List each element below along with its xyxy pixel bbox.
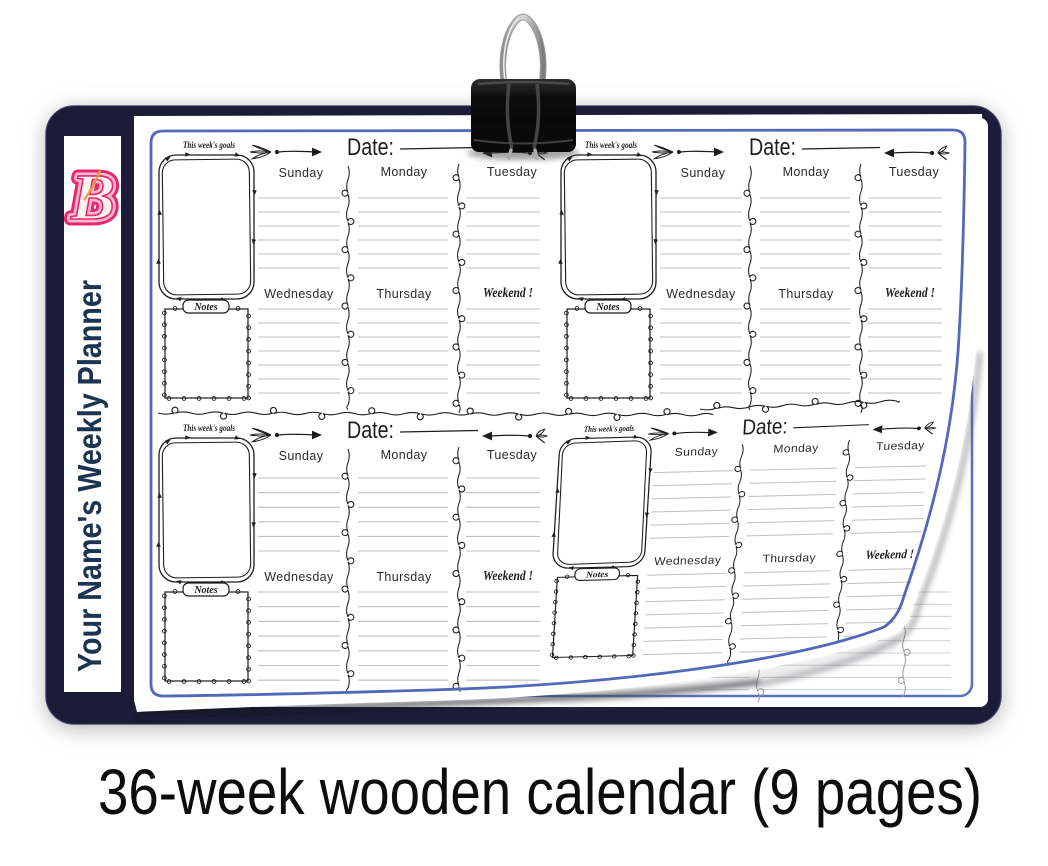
svg-text:Tuesday: Tuesday — [889, 165, 940, 179]
svg-text:Date:: Date: — [749, 134, 796, 161]
svg-text:Notes: Notes — [193, 302, 217, 313]
svg-text:This week's goals: This week's goals — [584, 423, 635, 434]
svg-text:Sunday: Sunday — [674, 445, 718, 459]
svg-text:Weekend !: Weekend ! — [483, 286, 533, 301]
svg-text:Wednesday: Wednesday — [666, 287, 736, 301]
svg-text:36-week wooden calendar (9 pag: 36-week wooden calendar (9 pages) — [98, 756, 982, 828]
svg-text:Thursday: Thursday — [778, 287, 834, 301]
svg-text:Thursday: Thursday — [376, 287, 432, 301]
svg-text:Date:: Date: — [347, 134, 394, 161]
svg-text:Sunday: Sunday — [279, 449, 324, 463]
svg-text:Notes: Notes — [193, 585, 217, 596]
svg-text:Monday: Monday — [381, 165, 428, 179]
svg-text:Sunday: Sunday — [681, 166, 726, 180]
svg-text:Thursday: Thursday — [762, 552, 816, 566]
svg-text:This week's goals: This week's goals — [585, 141, 637, 151]
svg-text:Thursday: Thursday — [376, 570, 432, 584]
svg-text:Notes: Notes — [595, 302, 619, 313]
svg-text:This week's goals: This week's goals — [183, 141, 235, 151]
svg-text:Tuesday: Tuesday — [487, 448, 538, 462]
svg-text:Wednesday: Wednesday — [654, 554, 722, 568]
svg-text:Date:: Date: — [742, 414, 789, 439]
svg-text:Weekend !: Weekend ! — [483, 569, 533, 584]
svg-text:Tuesday: Tuesday — [487, 165, 538, 179]
svg-text:Monday: Monday — [381, 448, 428, 462]
svg-text:Weekend !: Weekend ! — [885, 286, 935, 301]
svg-text:Notes: Notes — [585, 570, 610, 580]
svg-text:Wednesday: Wednesday — [264, 570, 334, 584]
svg-text:Monday: Monday — [773, 442, 819, 456]
svg-text:Date:: Date: — [347, 417, 394, 444]
svg-text:Weekend !: Weekend ! — [865, 546, 914, 562]
svg-text:Your Name's Weekly Planner: Your Name's Weekly Planner — [71, 280, 108, 672]
svg-text:This week's goals: This week's goals — [183, 424, 235, 434]
svg-text:Sunday: Sunday — [279, 166, 324, 180]
svg-text:B: B — [70, 161, 115, 234]
svg-text:Tuesday: Tuesday — [876, 439, 925, 453]
svg-text:Wednesday: Wednesday — [264, 287, 334, 301]
svg-text:Monday: Monday — [783, 165, 830, 179]
